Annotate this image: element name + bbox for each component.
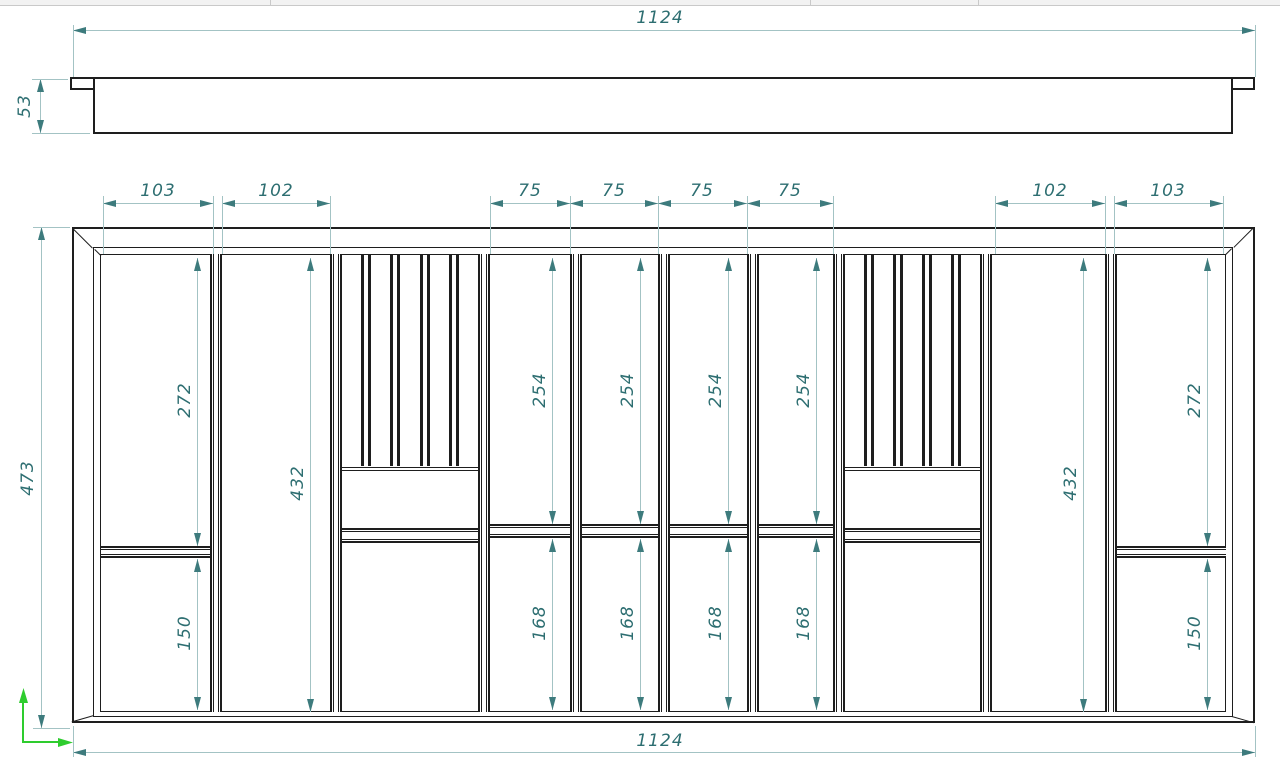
knife-slot [459,255,478,466]
dim-label: 254 [530,372,550,407]
knife-slot [400,255,419,466]
dim-label-overall-height: 473 [18,460,38,495]
dim-line [658,203,747,204]
knife-slot [932,255,951,466]
dim-line [816,258,817,524]
extension-line [995,196,996,254]
knife-rib [361,255,371,466]
extension-line [32,79,68,80]
dim-label-overall-width: 1124 [636,731,683,751]
divider-wall [747,254,759,712]
y-axis-line [22,696,24,743]
toolbar-divider [270,0,271,6]
dim-arrow-left [1114,200,1127,207]
x-axis-arrowhead [58,738,73,747]
dim-label-width: 1124 [636,8,683,28]
dim-label: 103 [140,181,175,201]
dim-label: 75 [690,181,714,201]
divider-wall [1105,254,1117,712]
dim-line [197,559,198,710]
extension-line [73,25,74,77]
toolbar-strip[interactable] [0,0,1280,6]
dim-label: 75 [778,181,802,201]
dim-label: 432 [288,465,308,500]
divider-wall [478,254,490,712]
dim-line [640,258,641,524]
dim-arrow-left [570,200,583,207]
extension-line [103,196,104,254]
dim-label: 272 [1185,382,1205,417]
extension-line [747,196,748,254]
dim-arrow-right [317,200,330,207]
dim-label: 150 [175,615,195,650]
dim-label: 150 [1185,615,1205,650]
divider-wall [582,524,658,538]
extension-line [73,726,74,757]
divider-wall [759,524,833,538]
knife-slot [371,255,390,466]
dim-arrow-right [1242,749,1255,756]
dim-arrow-down [38,715,45,728]
dim-line [728,258,729,524]
dim-label: 103 [1150,181,1185,201]
dim-label: 432 [1061,465,1081,500]
divider-wall [490,524,570,538]
dim-arrow-right [645,200,658,207]
knife-slot [430,255,449,466]
extension-line [1255,726,1256,757]
knife-block-base [342,467,478,471]
y-axis-arrowhead [19,688,28,703]
extension-line [570,196,571,254]
dim-arrow-right [1092,200,1105,207]
divider-wall [570,254,582,712]
dim-label-height: 53 [15,94,35,118]
dim-line [552,539,553,710]
dim-label: 254 [794,372,814,407]
knife-slot [961,255,980,466]
dim-label: 168 [794,605,814,640]
dim-arrow-left [103,200,116,207]
dim-line [640,539,641,710]
dim-line [73,752,1255,753]
dim-label: 254 [618,372,638,407]
dim-label: 168 [530,605,550,640]
dim-arrow-down [37,120,44,133]
knife-slot [845,255,864,466]
dim-arrow-right [1210,200,1223,207]
dim-label: 75 [602,181,626,201]
dim-line [1207,258,1208,546]
dim-arrow-left [222,200,235,207]
dim-line [816,539,817,710]
extension-line [32,133,90,134]
knife-rib [449,255,459,466]
divider-wall [210,254,222,712]
divider-wall [670,524,747,538]
divider-wall [101,546,210,558]
knife-slot [342,255,361,466]
dim-label: 102 [1032,181,1067,201]
knife-slot [874,255,893,466]
extension-line [213,196,214,254]
knife-rib [390,255,400,466]
dim-arrow-up [38,227,45,240]
dim-label: 254 [706,372,726,407]
knife-block-base [845,467,980,471]
dim-arrow-left [73,749,86,756]
dim-arrow-right [734,200,747,207]
divider-wall [1117,546,1226,558]
knife-rib [893,255,903,466]
extension-line [490,196,491,254]
dim-line [73,30,1255,31]
dim-arrow-right [557,200,570,207]
knife-rib [420,255,430,466]
dim-line [1083,258,1084,712]
dim-line [552,258,553,524]
dim-arrow-right [1242,27,1255,34]
toolbar-divider [978,0,979,6]
dim-arrow-left [490,200,503,207]
dim-line [728,539,729,710]
cad-drawing-viewport[interactable]: 1124 53 [0,0,1280,768]
knife-slat-block [342,255,478,466]
divider-wall [833,254,845,712]
divider-wall [658,254,670,712]
dim-line [41,227,42,728]
extension-line [1255,25,1256,77]
dim-arrow-right [820,200,833,207]
divider-wall [845,528,980,543]
tray-left-tab [70,79,93,90]
dim-arrow-left [73,27,86,34]
dim-label: 75 [518,181,542,201]
dim-label: 168 [706,605,726,640]
dim-line [570,203,658,204]
extension-line [658,196,659,254]
divider-wall [342,528,478,543]
tray-body-profile [93,79,1233,134]
dim-line [310,258,311,712]
dim-line [197,258,198,546]
knife-slot [903,255,922,466]
extension-line [222,196,223,254]
dim-arrow-right [200,200,213,207]
dim-arrow-left [747,200,760,207]
knife-rib [864,255,874,466]
dim-line [103,203,213,204]
knife-rib [922,255,932,466]
knife-slat-block [845,255,980,466]
dim-line [1114,203,1223,204]
dim-label: 272 [175,382,195,417]
extension-line [330,196,331,254]
dim-line [222,203,330,204]
x-axis-line [22,741,64,743]
dim-arrow-left [995,200,1008,207]
dim-arrow-left [658,200,671,207]
dim-line [995,203,1105,204]
extension-line [1114,196,1115,254]
dim-label: 168 [618,605,638,640]
extension-line [833,196,834,254]
divider-wall [330,254,342,712]
extension-line [1105,196,1106,254]
tray-right-tab [1232,79,1255,90]
dim-line [1207,559,1208,710]
toolbar-divider [810,0,811,6]
dim-arrow-up [37,79,44,92]
divider-wall [980,254,992,712]
extension-line [33,728,70,729]
extension-line [1223,196,1224,254]
dim-label: 102 [258,181,293,201]
knife-rib [951,255,961,466]
extension-line [33,227,70,228]
